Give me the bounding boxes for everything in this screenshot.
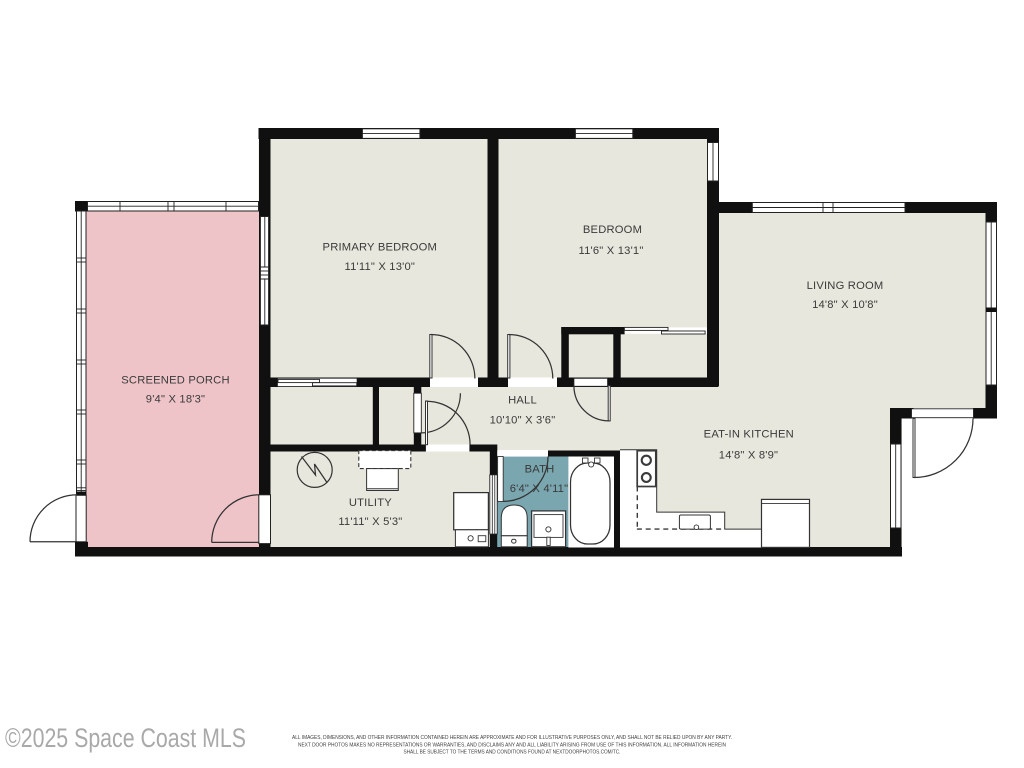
svg-text:9'4" X 18'3": 9'4" X 18'3" — [146, 393, 205, 405]
svg-text:6'4" X 4'11": 6'4" X 4'11" — [510, 483, 569, 495]
svg-text:EAT-IN KITCHEN: EAT-IN KITCHEN — [704, 429, 794, 441]
svg-text:LIVING ROOM: LIVING ROOM — [807, 280, 884, 292]
svg-text:BATH: BATH — [525, 463, 555, 475]
svg-text:UTILITY: UTILITY — [349, 497, 392, 509]
svg-text:11'11" X 5'3": 11'11" X 5'3" — [338, 516, 402, 528]
svg-text:ALL IMAGES, DIMENSIONS, AND OT: ALL IMAGES, DIMENSIONS, AND OTHER INFORM… — [292, 735, 732, 741]
svg-text:SHALL BE SUBJECT TO THE TERMS: SHALL BE SUBJECT TO THE TERMS AND CONDIT… — [404, 750, 621, 756]
svg-text:14'8" X 8'9": 14'8" X 8'9" — [719, 449, 778, 461]
svg-text:HALL: HALL — [508, 395, 537, 407]
svg-text:BEDROOM: BEDROOM — [583, 224, 642, 236]
svg-text:11'11" X 13'0": 11'11" X 13'0" — [345, 261, 416, 273]
svg-text:NEXT DOOR PHOTOS MAKES NO REPR: NEXT DOOR PHOTOS MAKES NO REPRESENTATION… — [298, 743, 726, 749]
svg-text:©2025 Space Coast MLS: ©2025 Space Coast MLS — [5, 723, 246, 753]
svg-text:14'8" X 10'8": 14'8" X 10'8" — [812, 299, 878, 311]
svg-text:10'10" X 3'6": 10'10" X 3'6" — [490, 414, 556, 426]
svg-text:11'6" X 13'1": 11'6" X 13'1" — [579, 245, 644, 257]
svg-text:PRIMARY BEDROOM: PRIMARY BEDROOM — [323, 242, 437, 254]
svg-text:SCREENED PORCH: SCREENED PORCH — [121, 375, 229, 387]
